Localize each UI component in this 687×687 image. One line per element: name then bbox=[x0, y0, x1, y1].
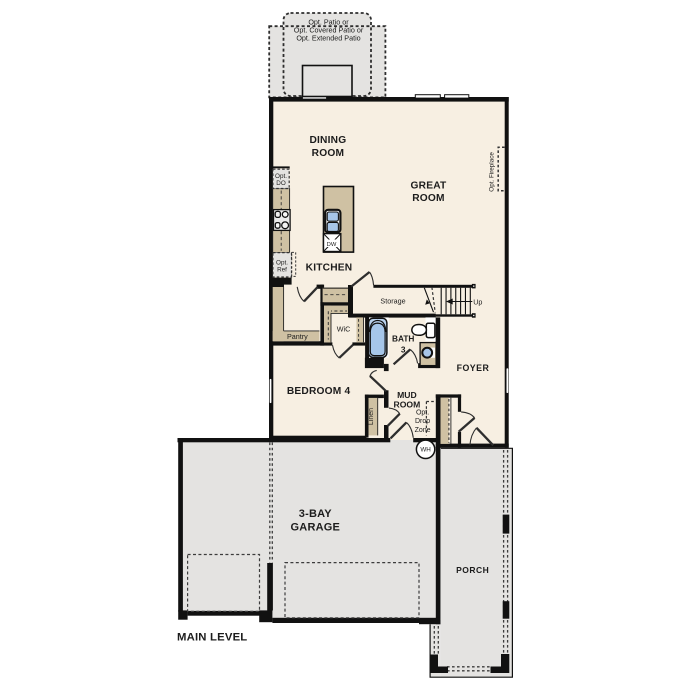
svg-text:GARAGE: GARAGE bbox=[291, 522, 340, 534]
svg-text:MAIN LEVEL: MAIN LEVEL bbox=[177, 632, 247, 644]
svg-text:WiC: WiC bbox=[337, 325, 351, 334]
svg-text:Opt. Fireplace: Opt. Fireplace bbox=[489, 152, 496, 192]
svg-text:ROOM: ROOM bbox=[412, 193, 445, 204]
svg-text:3-BAY: 3-BAY bbox=[299, 508, 332, 520]
svg-text:Opt.: Opt. bbox=[275, 173, 287, 180]
svg-text:Zone: Zone bbox=[415, 427, 431, 434]
svg-text:Opt. Extended Patio: Opt. Extended Patio bbox=[296, 33, 360, 42]
svg-text:Opt.: Opt. bbox=[276, 259, 288, 266]
svg-text:Storage: Storage bbox=[380, 297, 405, 306]
svg-text:KITCHEN: KITCHEN bbox=[306, 263, 353, 274]
svg-text:BEDROOM 4: BEDROOM 4 bbox=[287, 386, 351, 397]
svg-text:Opt.: Opt. bbox=[416, 409, 429, 416]
svg-text:BATH: BATH bbox=[392, 333, 414, 343]
svg-text:WH: WH bbox=[420, 447, 431, 454]
svg-text:DINING: DINING bbox=[309, 135, 346, 146]
svg-text:FOYER: FOYER bbox=[457, 363, 490, 373]
svg-text:3: 3 bbox=[401, 344, 406, 354]
svg-text:ROOM: ROOM bbox=[394, 400, 421, 410]
svg-text:Up: Up bbox=[473, 297, 482, 306]
svg-text:Drop: Drop bbox=[415, 418, 430, 425]
svg-text:GREAT: GREAT bbox=[411, 181, 447, 192]
svg-text:DO: DO bbox=[276, 180, 286, 187]
svg-text:Linen: Linen bbox=[368, 408, 375, 425]
svg-text:DW: DW bbox=[327, 242, 337, 248]
svg-text:ROOM: ROOM bbox=[312, 148, 345, 159]
svg-text:Pantry: Pantry bbox=[287, 332, 308, 341]
svg-text:Ref: Ref bbox=[277, 266, 287, 273]
svg-text:PORCH: PORCH bbox=[456, 565, 489, 575]
